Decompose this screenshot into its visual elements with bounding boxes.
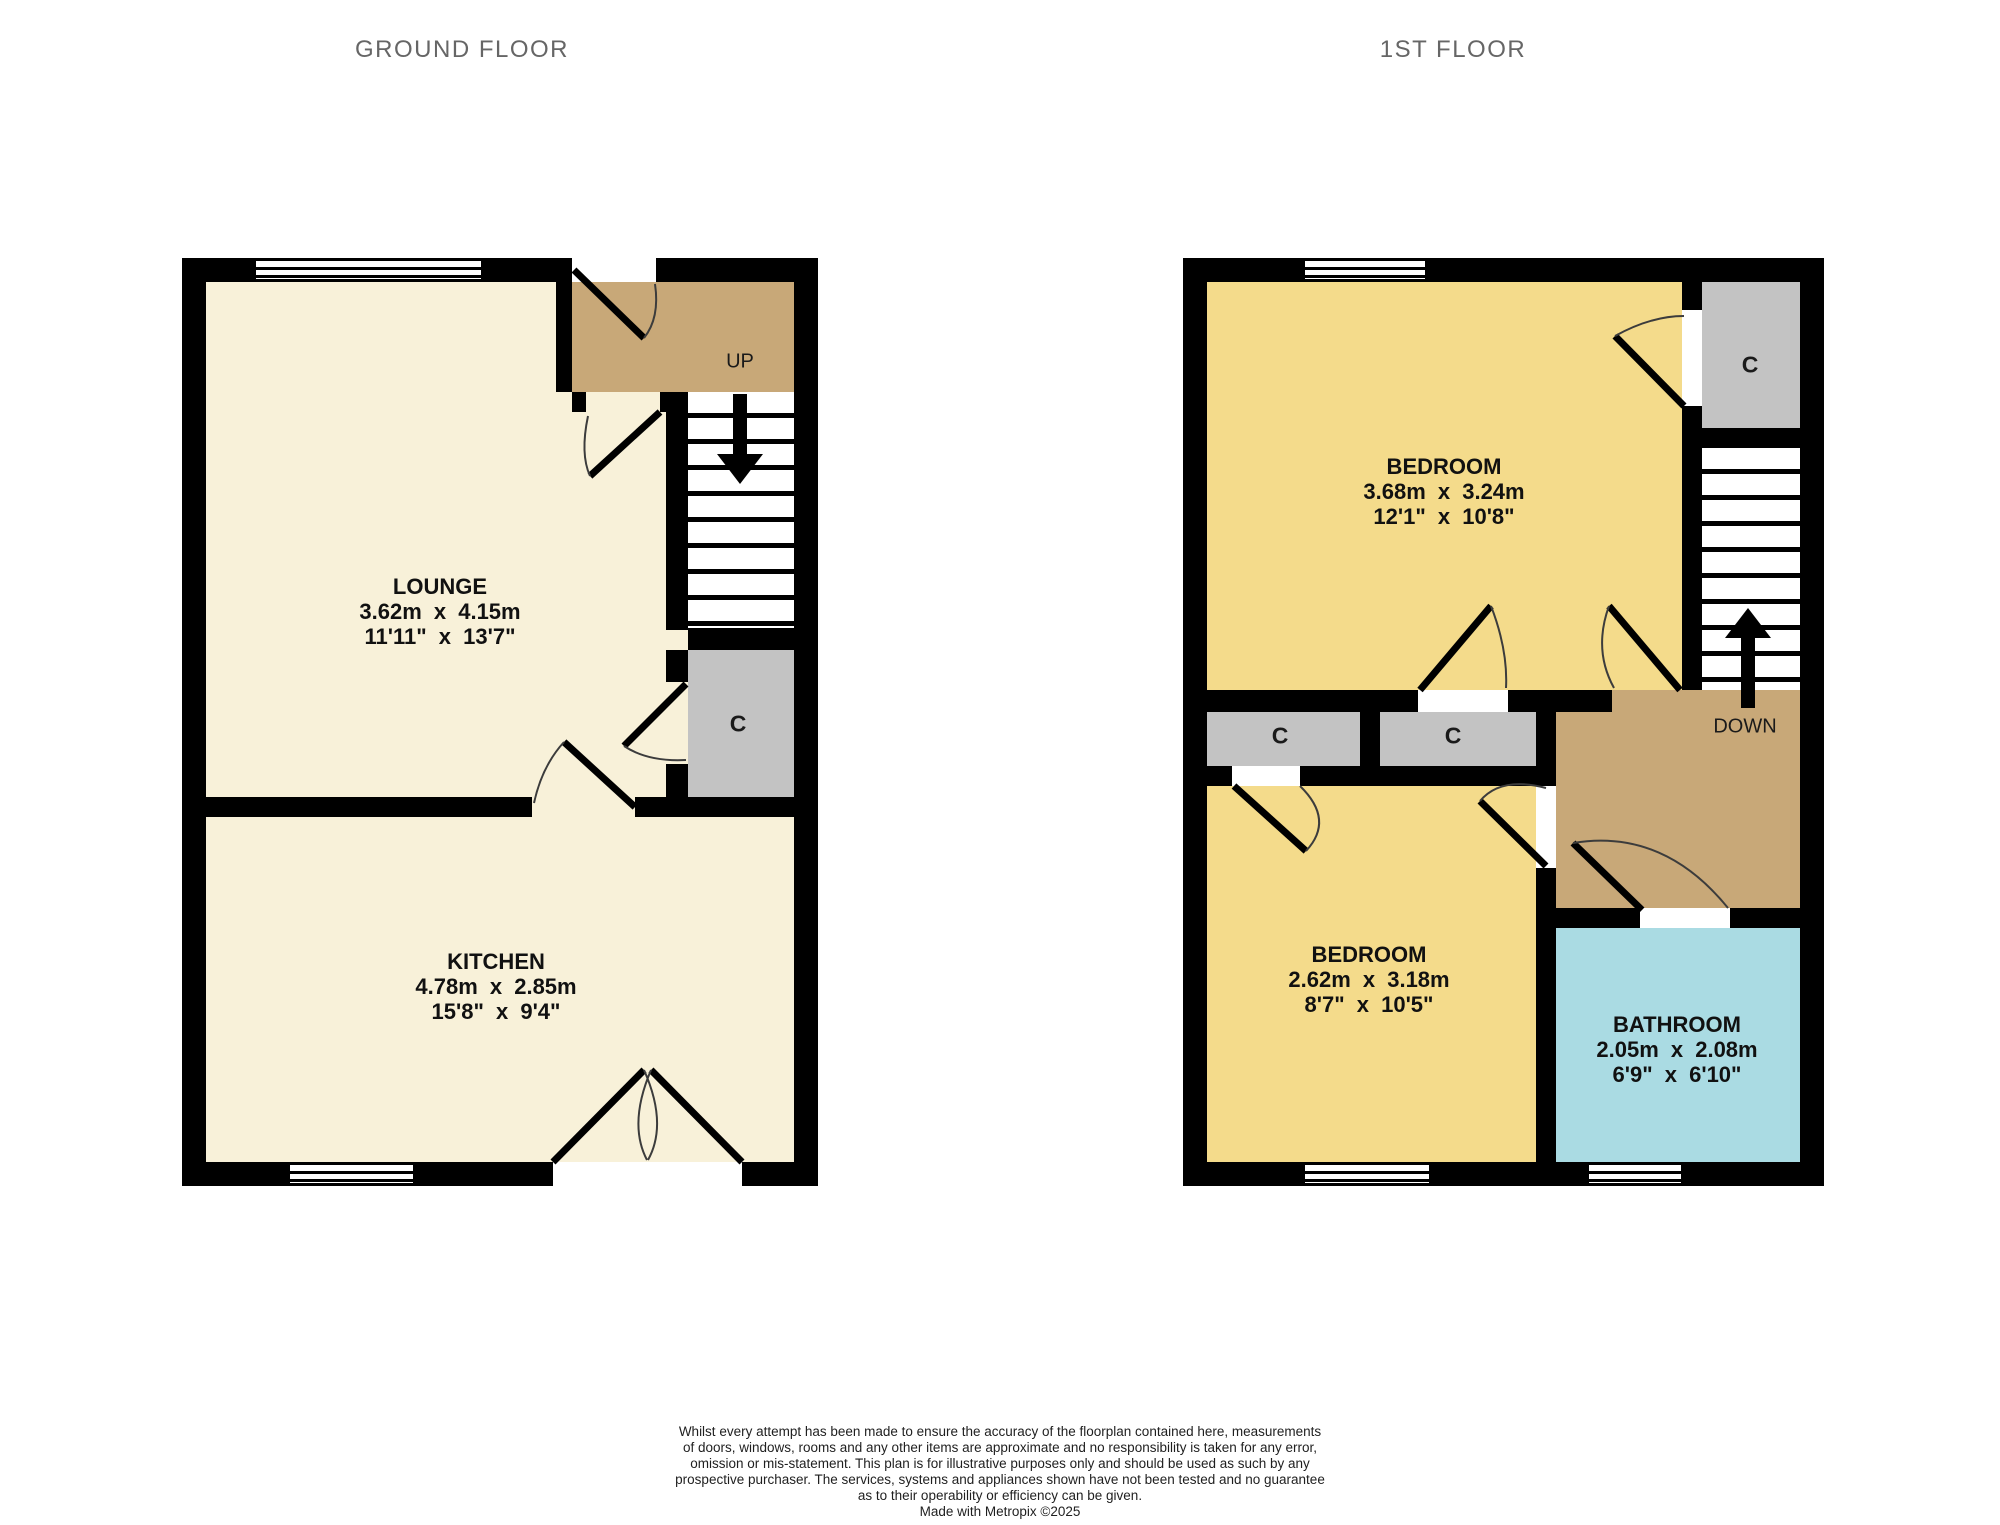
wall-under-cupboards-left	[1207, 766, 1232, 786]
bedroom2-imperial: 8'7" x 10'5"	[1288, 992, 1449, 1017]
disclaimer-line: as to their operability or efficiency ca…	[500, 1488, 1500, 1504]
wall-under-stairs	[688, 628, 794, 650]
bathroom-imperial: 6'9" x 6'10"	[1596, 1062, 1757, 1087]
kitchen-window	[287, 1162, 416, 1186]
wall-bed2-right	[1536, 868, 1556, 1162]
stairs-arrow-shaft	[733, 394, 747, 456]
cupboard-top-label: C	[1742, 352, 1759, 379]
disclaimer-line: Whilst every attempt has been made to en…	[500, 1424, 1500, 1440]
disclaimer-line: of doors, windows, rooms and any other i…	[500, 1440, 1500, 1456]
wall-under-cupboard-top	[1702, 428, 1800, 448]
disclaimer-line: omission or mis-statement. This plan is …	[500, 1456, 1500, 1472]
bedroom2-label: BEDROOM 2.62m x 3.18m 8'7" x 10'5"	[1288, 942, 1449, 1017]
bathroom-metric: 2.05m x 2.08m	[1596, 1037, 1757, 1062]
ground-floor-plan: LOUNGE 3.62m x 4.15m 11'11" x 13'7" KITC…	[182, 258, 818, 1186]
floorplan-page: GROUND FLOOR 1ST FLOOR	[0, 0, 2000, 1525]
lounge-metric: 3.62m x 4.15m	[359, 599, 520, 624]
stairs-arrow-up-icon	[1725, 608, 1771, 638]
lounge-imperial: 11'11" x 13'7"	[359, 624, 520, 649]
disclaimer-text: Whilst every attempt has been made to en…	[500, 1424, 1500, 1520]
stairs-arrow-shaft	[1741, 638, 1755, 708]
ground-floor-title: GROUND FLOOR	[262, 36, 662, 64]
wall-outer-left	[182, 258, 206, 1186]
bedroom1-window	[1302, 258, 1428, 282]
bathroom-label: BATHROOM 2.05m x 2.08m 6'9" x 6'10"	[1596, 1012, 1757, 1087]
bedroom1-imperial: 12'1" x 10'8"	[1363, 504, 1524, 529]
stairs-arrow-down-icon	[717, 454, 763, 484]
bedroom2-name: BEDROOM	[1288, 942, 1449, 967]
bathroom-window	[1586, 1162, 1684, 1186]
wall-bed1-right	[1682, 406, 1702, 690]
wall-bed1-bottom-left	[1207, 690, 1418, 712]
lounge-name: LOUNGE	[359, 574, 520, 599]
wall-outer-left	[1183, 258, 1207, 1186]
kitchen-metric: 4.78m x 2.85m	[415, 974, 576, 999]
wall-cupboard-right	[1536, 712, 1556, 766]
lounge-label: LOUNGE 3.62m x 4.15m 11'11" x 13'7"	[359, 574, 520, 649]
kitchen-name: KITCHEN	[415, 949, 576, 974]
kitchen-imperial: 15'8" x 9'4"	[415, 999, 576, 1024]
cupboard-ground-label: C	[730, 711, 747, 738]
wall-cupboard-divider	[1360, 712, 1380, 766]
entrance-hall	[572, 282, 794, 392]
patio-door-opening	[553, 1162, 742, 1186]
entrance-opening	[572, 258, 656, 282]
bedroom1-metric: 3.68m x 3.24m	[1363, 479, 1524, 504]
bedroom2-metric: 2.62m x 3.18m	[1288, 967, 1449, 992]
wall-outer-right	[794, 258, 818, 1186]
wall-outer-bottom	[1183, 1162, 1824, 1186]
bedroom2-window	[1302, 1162, 1432, 1186]
wall-hall-left	[556, 282, 572, 392]
cupboard-left-label: C	[1272, 723, 1289, 750]
wall-under-cupboards-right	[1300, 766, 1556, 786]
wall-hall-bottom-stub	[572, 392, 586, 412]
wall-bed1-right-stub	[1682, 282, 1702, 310]
lounge-window	[253, 258, 484, 282]
wall-bathroom-top-left	[1556, 908, 1640, 928]
bathroom-name: BATHROOM	[1596, 1012, 1757, 1037]
wall-outer-top	[1183, 258, 1824, 282]
wall-bed1-bottom-mid	[1508, 690, 1612, 712]
bedroom1-name: BEDROOM	[1363, 454, 1524, 479]
bedroom1-label: BEDROOM 3.68m x 3.24m 12'1" x 10'8"	[1363, 454, 1524, 529]
disclaimer-credit: Made with Metropix ©2025	[500, 1504, 1500, 1520]
wall-outer-right	[1800, 258, 1824, 1186]
wall-divider-left	[206, 797, 532, 817]
first-floor-plan: BEDROOM 3.68m x 3.24m 12'1" x 10'8" BEDR…	[1183, 258, 1824, 1186]
disclaimer-line: prospective purchaser. The services, sys…	[500, 1472, 1500, 1488]
wall-cupboard-stub-bottom	[666, 764, 688, 797]
kitchen-label: KITCHEN 4.78m x 2.85m 15'8" x 9'4"	[415, 949, 576, 1024]
first-floor-title: 1ST FLOOR	[1253, 36, 1653, 64]
down-label: DOWN	[1713, 716, 1776, 739]
wall-divider-right	[635, 797, 794, 817]
wall-stairwell-left	[666, 392, 688, 630]
up-label: UP	[726, 351, 754, 374]
wall-cupboard-stub-top	[666, 650, 688, 682]
wall-bathroom-top-right	[1730, 908, 1800, 928]
cupboard-mid-label: C	[1445, 723, 1462, 750]
